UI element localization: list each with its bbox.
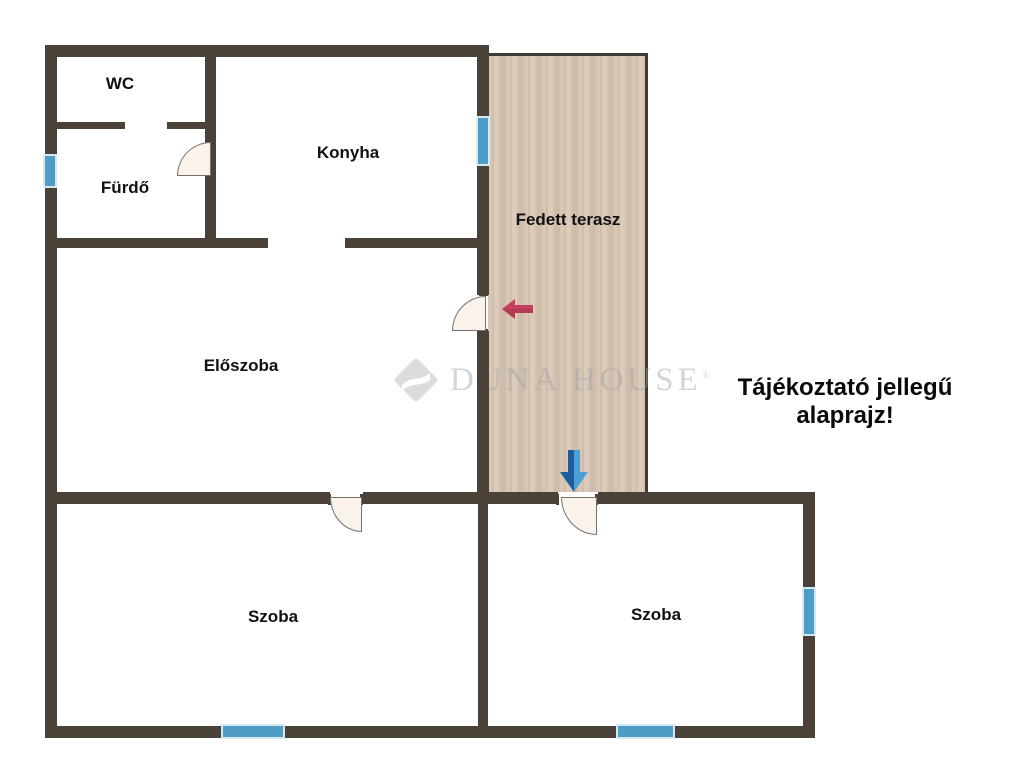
room-label-konyha: Konyha — [300, 143, 396, 163]
duna-house-logo-icon — [390, 354, 442, 406]
wall-terrace-side-upper — [477, 45, 489, 117]
wall-wc-furdo-left — [57, 122, 125, 129]
wall-furdo-bottom — [45, 238, 268, 248]
room-label-szoba-right: Szoba — [616, 605, 696, 625]
wall-bottom-exterior — [45, 726, 815, 738]
entry-door — [452, 296, 486, 331]
watermark-text: DUNA HOUSE® — [450, 362, 710, 399]
terrace-area — [488, 53, 648, 492]
window-szoba-right-south — [616, 724, 675, 739]
wall-terrace-side-lower — [477, 331, 489, 492]
furdo-door — [177, 142, 211, 176]
entry-arrow-left-icon — [502, 299, 534, 319]
window-konyha-east — [476, 116, 490, 166]
window-szoba-right-east — [802, 587, 816, 636]
terrace-exit-arrow-down-icon — [560, 450, 588, 492]
room-label-furdo: Fürdő — [85, 178, 165, 198]
window-szoba-left-south — [221, 724, 285, 739]
wall-terrace-side-middle — [477, 165, 489, 295]
window-furdo-west — [43, 154, 57, 188]
floor-plan: DUNA HOUSE® WC Fürdő — [0, 0, 1018, 768]
watermark: DUNA HOUSE® — [390, 352, 720, 408]
room-label-wc: WC — [95, 74, 145, 94]
disclaimer-text: Tájékoztató jellegű alaprajz! — [688, 374, 1002, 430]
wall-mid-right — [598, 492, 815, 504]
szoba-right-door — [561, 497, 597, 535]
room-label-terasz: Fedett terasz — [500, 210, 636, 230]
door-jamb — [556, 494, 559, 505]
wall-room-divider — [478, 504, 488, 726]
room-label-szoba-left: Szoba — [233, 607, 313, 627]
wall-mid-center — [363, 492, 558, 504]
room-label-eloszoba: Előszoba — [191, 356, 291, 376]
wall-top-exterior — [45, 45, 488, 57]
wall-konyha-bottom — [345, 238, 480, 248]
szoba-left-door — [330, 497, 362, 532]
wall-left-exterior — [45, 45, 57, 738]
wall-mid-left — [45, 492, 330, 504]
